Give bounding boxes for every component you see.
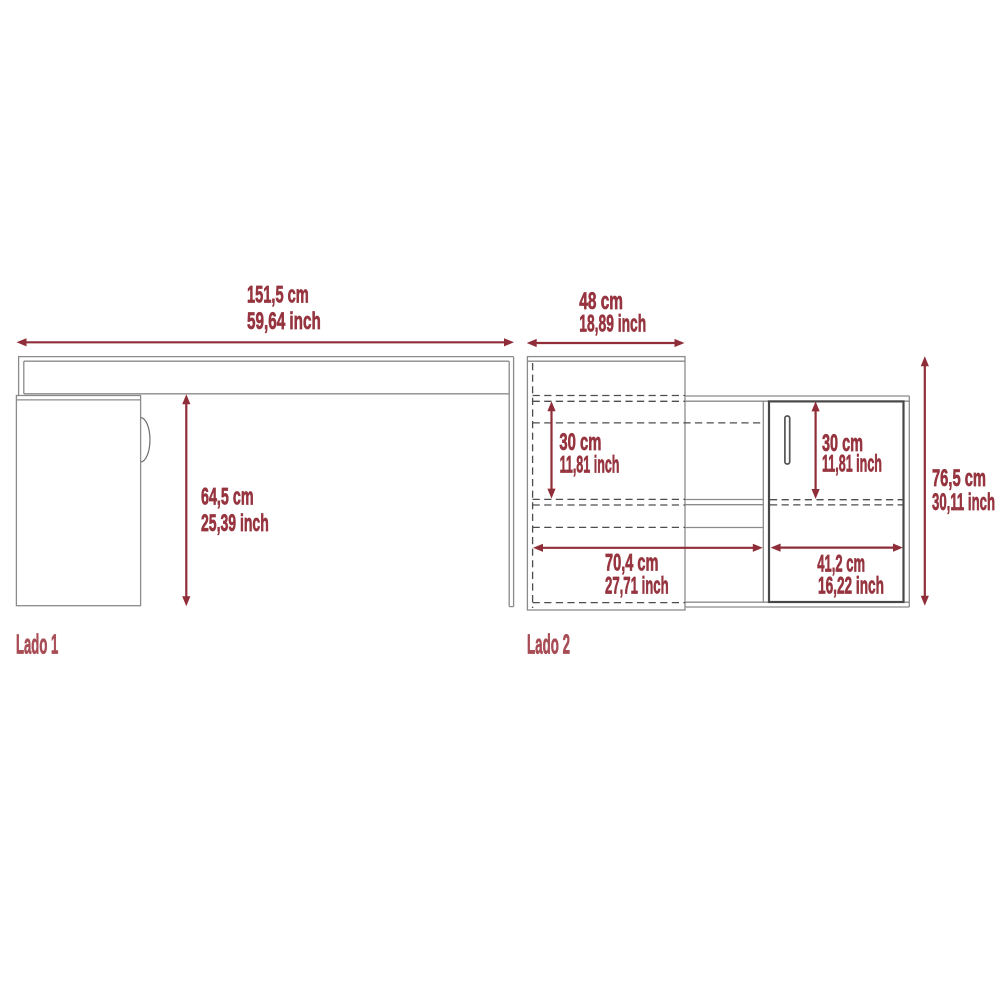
svg-text:25,39 inch: 25,39 inch	[201, 510, 269, 537]
svg-text:11,81 inch: 11,81 inch	[560, 453, 620, 479]
svg-text:Lado 1: Lado 1	[16, 629, 58, 660]
svg-text:59,64 inch: 59,64 inch	[247, 309, 321, 335]
svg-text:151,5 cm: 151,5 cm	[247, 282, 309, 309]
svg-text:16,22 inch: 16,22 inch	[818, 573, 884, 600]
svg-text:64,5 cm: 64,5 cm	[201, 484, 254, 511]
svg-text:Lado 2: Lado 2	[527, 628, 570, 660]
svg-text:30,11 inch: 30,11 inch	[932, 489, 995, 516]
svg-text:11,81 inch: 11,81 inch	[822, 451, 882, 477]
svg-text:18,89 inch: 18,89 inch	[579, 311, 646, 338]
svg-text:27,71 inch: 27,71 inch	[605, 573, 669, 600]
